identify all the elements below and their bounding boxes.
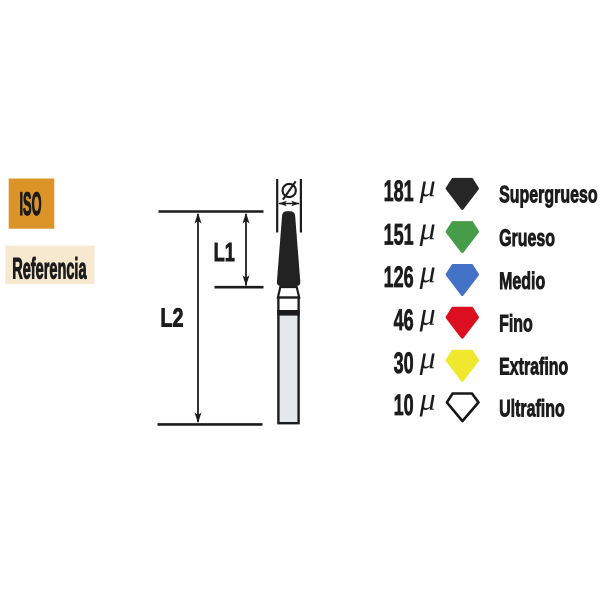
svg-text:Ultrafino: Ultrafino — [499, 395, 565, 422]
svg-text:μ: μ — [419, 210, 436, 246]
svg-text:L1: L1 — [214, 238, 235, 267]
svg-text:μ: μ — [419, 167, 436, 203]
svg-text:μ: μ — [419, 253, 436, 289]
svg-text:10: 10 — [394, 389, 414, 422]
svg-text:μ: μ — [419, 381, 436, 417]
svg-text:30: 30 — [394, 348, 414, 381]
svg-text:Medio: Medio — [499, 268, 545, 295]
svg-text:151: 151 — [384, 219, 414, 252]
svg-text:Extrafino: Extrafino — [499, 353, 568, 380]
svg-text:126: 126 — [384, 262, 414, 295]
svg-text:L2: L2 — [160, 303, 183, 332]
svg-text:181: 181 — [384, 176, 414, 209]
svg-text:Referencia: Referencia — [12, 252, 87, 285]
svg-text:μ: μ — [419, 339, 436, 375]
svg-text:Fino: Fino — [499, 310, 533, 337]
svg-text:Grueso: Grueso — [499, 225, 555, 252]
svg-text:Supergrueso: Supergrueso — [499, 181, 598, 208]
svg-text:μ: μ — [419, 296, 436, 332]
svg-text:ISO: ISO — [19, 187, 41, 222]
svg-text:46: 46 — [394, 304, 414, 337]
